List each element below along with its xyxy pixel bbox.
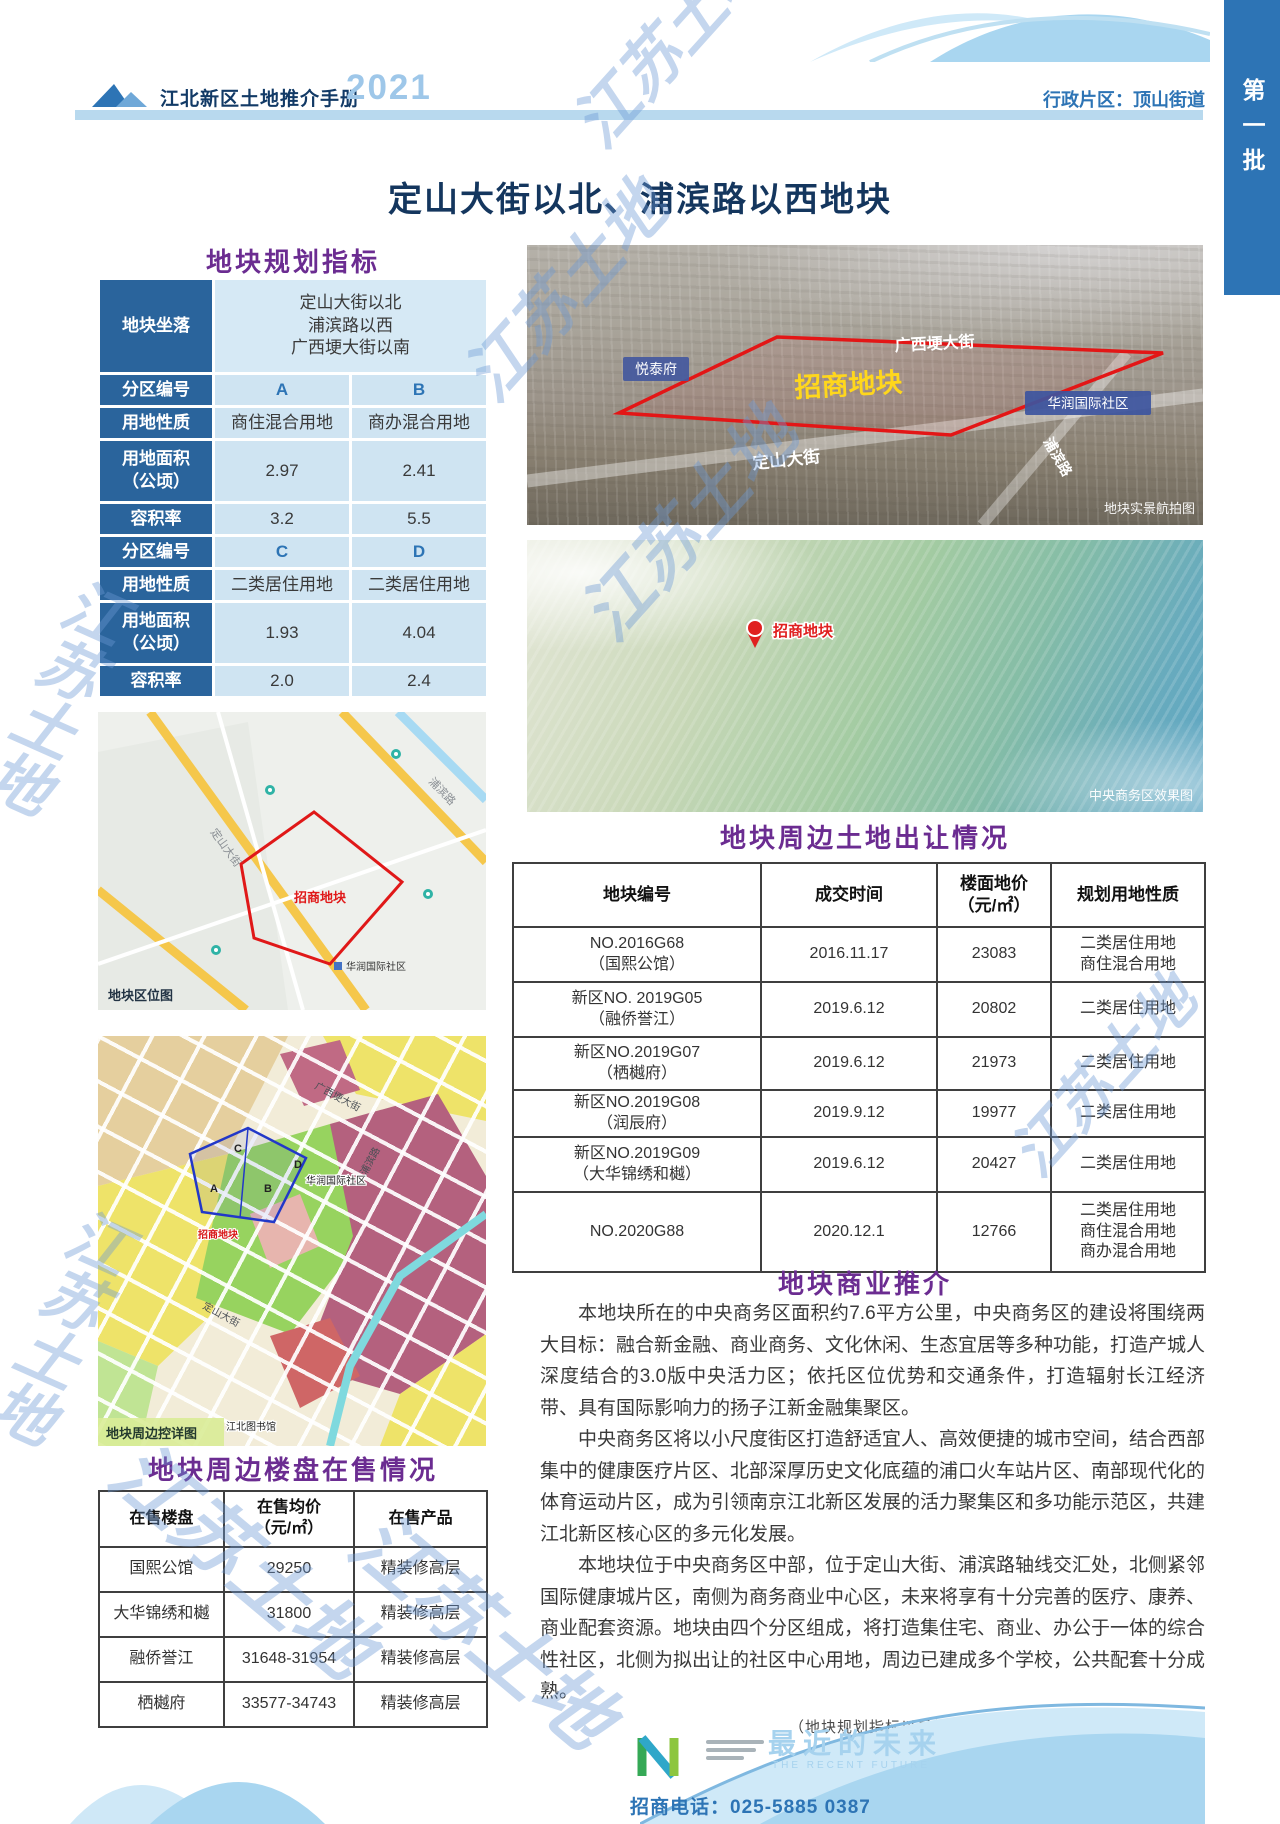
housing-table: 在售楼盘 在售均价 （元/㎡） 在售产品 国熙公馆 29250 精装修高层 大华… xyxy=(98,1490,488,1728)
deal-date: 2016.11.17 xyxy=(761,927,937,982)
floor-price: 20802 xyxy=(937,982,1051,1037)
zone-d: D xyxy=(352,537,486,567)
aerial-photo: 招商地块 悦泰府 广西埂大街 华润国际社区 定山大街 浦滨路 地块实景航拍图 xyxy=(527,245,1203,525)
zoning-map: C A B D 招商地块 广西埂大街 浦滨路 定山大街 华润国际社区 江北图书馆… xyxy=(98,1036,486,1446)
area-b: 2.41 xyxy=(352,441,486,501)
deal-date: 2019.6.12 xyxy=(761,982,937,1037)
promo-text: 本地块所在的中央商务区面积约7.6平方公里，中央商务区的建设将围绕两大目标：融合… xyxy=(540,1298,1205,1737)
photo-caption: 中央商务区效果图 xyxy=(1089,788,1193,803)
road-label-pubin: 浦滨路 xyxy=(357,1145,383,1178)
plot-label: 招商地块 xyxy=(198,1228,239,1241)
row-label-far2: 容积率 xyxy=(100,666,212,696)
promo-title: 地块商业推介 xyxy=(527,1264,1203,1301)
row-label-area: 用地面积 （公顷） xyxy=(100,441,212,501)
logo-text-lines xyxy=(706,1736,768,1764)
zone-a: A xyxy=(215,375,349,405)
plot-no: 新区NO.2019G07 （栖樾府） xyxy=(513,1037,761,1090)
zone-c: C xyxy=(215,537,349,567)
estate-name: 国熙公馆 xyxy=(99,1547,224,1592)
zone-b-label: B xyxy=(264,1183,272,1195)
col-header-deal-date: 成交时间 xyxy=(761,863,937,927)
col-header-floor-price: 楼面地价 （元/㎡） xyxy=(937,863,1051,927)
planned-use: 二类居住用地 商住混合用地 商办混合用地 xyxy=(1051,1192,1205,1272)
zone-b: B xyxy=(352,375,486,405)
area-c: 1.93 xyxy=(215,603,349,663)
cbd-render-overlay: 招商地块 中央商务区效果图 xyxy=(527,540,1203,812)
planned-use: 二类居住用地 xyxy=(1051,982,1205,1037)
land-use-d: 二类居住用地 xyxy=(352,570,486,600)
promo-paragraph-3: 本地块位于中央商务区中部，位于定山大街、浦滨路轴线交汇处，北侧紧邻国际健康城片区… xyxy=(540,1550,1205,1708)
col-header-product: 在售产品 xyxy=(354,1491,487,1547)
deal-date: 2019.6.12 xyxy=(761,1137,937,1192)
plot-no: NO.2016G68 （国熙公馆） xyxy=(513,927,761,982)
estate-product: 精装修高层 xyxy=(354,1592,487,1637)
estate-price: 31648-31954 xyxy=(224,1637,355,1682)
district-label: 行政片区：顶山街道 xyxy=(1043,86,1203,112)
estate-product: 精装修高层 xyxy=(354,1682,487,1727)
col-header-estate: 在售楼盘 xyxy=(99,1491,224,1547)
row-label-zone-no2: 分区编号 xyxy=(100,537,212,567)
watermark: 江苏土地 xyxy=(548,0,788,164)
batch-side-tab: 第一批 xyxy=(1224,0,1280,295)
zone-d-label: D xyxy=(294,1159,302,1171)
planning-table: 地块坐落 定山大街以北 浦滨路以西 广西埂大街以南 分区编号 A B 用地性质 … xyxy=(97,277,489,699)
planned-use: 二类居住用地 xyxy=(1051,1090,1205,1137)
community-label: 华润国际社区 xyxy=(346,960,406,973)
plot-no: NO.2020G88 xyxy=(513,1192,761,1272)
location-map: 招商地块 定山大街 浦滨路 华润国际社区 地块区位图 xyxy=(98,712,486,1010)
estate-product: 精装修高层 xyxy=(354,1547,487,1592)
library-label: 江北图书馆 xyxy=(226,1420,276,1433)
page-title: 定山大街以北、浦滨路以西地块 xyxy=(75,172,1205,221)
plot-no: 新区NO.2019G09 （大华锦绣和樾） xyxy=(513,1137,761,1192)
land-use-b: 商办混合用地 xyxy=(352,408,486,438)
page: 江北新区土地推介手册 2021 行政片区：顶山街道 第一批 定山大街以北、浦滨路… xyxy=(0,0,1280,1824)
deal-date: 2019.9.12 xyxy=(761,1090,937,1137)
floor-price: 20427 xyxy=(937,1137,1051,1192)
housing-table-title: 地块周边楼盘在售情况 xyxy=(98,1450,488,1487)
far-b: 5.5 xyxy=(352,504,486,534)
estate-product: 精装修高层 xyxy=(354,1637,487,1682)
estate-name: 栖樾府 xyxy=(99,1682,224,1727)
floor-price: 12766 xyxy=(937,1192,1051,1272)
planned-use: 二类居住用地 xyxy=(1051,1137,1205,1192)
road-label-guangxigeng: 广西埂大街 xyxy=(313,1079,363,1114)
land-sales-title: 地块周边土地出让情况 xyxy=(527,818,1203,855)
row-label-land-use2: 用地性质 xyxy=(100,570,212,600)
row-label-location: 地块坐落 xyxy=(100,280,212,372)
planned-use: 二类居住用地 xyxy=(1051,1037,1205,1090)
floor-price: 23083 xyxy=(937,927,1051,982)
road-label-dingshan: 定山大街 xyxy=(201,1299,242,1329)
handbook-title: 江北新区土地推介手册 xyxy=(160,84,360,111)
area-d: 4.04 xyxy=(352,603,486,663)
area-a: 2.97 xyxy=(215,441,349,501)
footer-wave-left xyxy=(70,1740,325,1824)
location-map-graphic: 招商地块 定山大街 浦滨路 华润国际社区 地块区位图 xyxy=(98,712,486,1010)
far-d: 2.4 xyxy=(352,666,486,696)
header-divider xyxy=(75,110,1203,120)
handbook-logo-mountain-icon xyxy=(90,82,150,108)
plot-label: 招商地块 xyxy=(294,890,347,905)
top-wave-decoration xyxy=(810,0,1210,62)
footer-slogan-en: THE RECENT FUTURE xyxy=(772,1760,930,1771)
community-label: 华润国际社区 xyxy=(1048,396,1129,411)
aerial-photo-overlay: 招商地块 悦泰府 广西埂大街 华润国际社区 定山大街 浦滨路 地块实景航拍图 xyxy=(527,245,1203,525)
developer-logo-n-icon xyxy=(630,1728,700,1780)
estate-price: 29250 xyxy=(224,1547,355,1592)
plot-location-value: 定山大街以北 浦滨路以西 广西埂大街以南 xyxy=(215,280,486,372)
contact-phone: 招商电话：025-5885 0387 xyxy=(630,1792,871,1819)
row-label-far: 容积率 xyxy=(100,504,212,534)
deal-date: 2019.6.12 xyxy=(761,1037,937,1090)
col-header-plot-no: 地块编号 xyxy=(513,863,761,927)
plot-no: 新区NO. 2019G05 （融侨誉江） xyxy=(513,982,761,1037)
far-a: 3.2 xyxy=(215,504,349,534)
zone-c-label: C xyxy=(234,1143,242,1155)
footer-slogan: 最近的未来 xyxy=(768,1722,943,1762)
floor-price: 21973 xyxy=(937,1037,1051,1090)
row-label-area2: 用地面积 （公顷） xyxy=(100,603,212,663)
estate-name: 大华锦绣和樾 xyxy=(99,1592,224,1637)
estate-price: 31800 xyxy=(224,1592,355,1637)
promo-paragraph-2: 中央商务区将以小尺度街区打造舒适宜人、高效便捷的城市空间，结合西部集中的健康医疗… xyxy=(540,1424,1205,1550)
community-label: 华润国际社区 xyxy=(306,1174,366,1187)
far-c: 2.0 xyxy=(215,666,349,696)
planning-table-title: 地块规划指标 xyxy=(98,242,488,279)
estate-name: 融侨誉江 xyxy=(99,1637,224,1682)
estate-price: 33577-34743 xyxy=(224,1682,355,1727)
pin-label: 招商地块 xyxy=(773,622,834,640)
deal-date: 2020.12.1 xyxy=(761,1192,937,1272)
planned-use: 二类居住用地 商住混合用地 xyxy=(1051,927,1205,982)
estate-label: 悦泰府 xyxy=(635,361,677,377)
row-label-land-use: 用地性质 xyxy=(100,408,212,438)
promo-paragraph-1: 本地块所在的中央商务区面积约7.6平方公里，中央商务区的建设将围绕两大目标：融合… xyxy=(540,1298,1205,1424)
zone-a-label: A xyxy=(210,1183,218,1195)
plot-outline-blue xyxy=(190,1128,306,1222)
plot-label: 招商地块 xyxy=(794,367,904,403)
handbook-year: 2021 xyxy=(346,68,432,108)
floor-price: 19977 xyxy=(937,1090,1051,1137)
land-use-a: 商住混合用地 xyxy=(215,408,349,438)
col-header-price: 在售均价 （元/㎡） xyxy=(224,1491,355,1547)
map-caption: 地块区位图 xyxy=(108,988,173,1003)
photo-caption: 地块实景航拍图 xyxy=(1104,501,1195,516)
map-caption: 地块周边控详图 xyxy=(106,1426,197,1441)
cbd-render-image: 招商地块 中央商务区效果图 xyxy=(527,540,1203,812)
zoning-map-labels: C A B D 招商地块 广西埂大街 浦滨路 定山大街 华润国际社区 江北图书馆… xyxy=(98,1036,486,1446)
land-use-c: 二类居住用地 xyxy=(215,570,349,600)
col-header-planned-use: 规划用地性质 xyxy=(1051,863,1205,927)
batch-tab-label: 第一批 xyxy=(1235,78,1269,183)
row-label-zone-no: 分区编号 xyxy=(100,375,212,405)
land-sales-table: 地块编号 成交时间 楼面地价 （元/㎡） 规划用地性质 NO.2016G68 （… xyxy=(512,862,1206,1273)
plot-no: 新区NO.2019G08 （润辰府） xyxy=(513,1090,761,1137)
